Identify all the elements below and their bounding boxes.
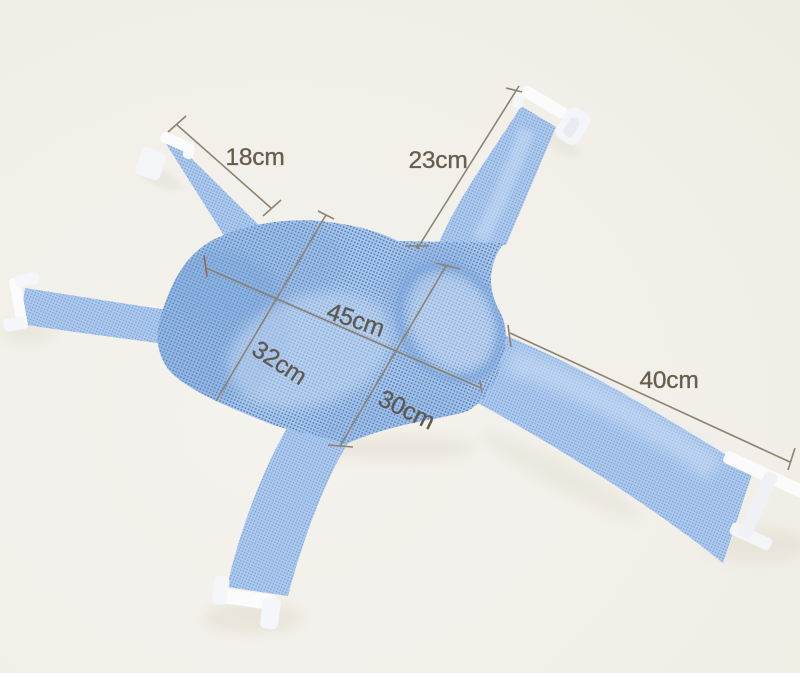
svg-text:18cm: 18cm [225, 144, 284, 171]
svg-text:40cm: 40cm [639, 367, 698, 394]
svg-text:23cm: 23cm [408, 147, 467, 174]
